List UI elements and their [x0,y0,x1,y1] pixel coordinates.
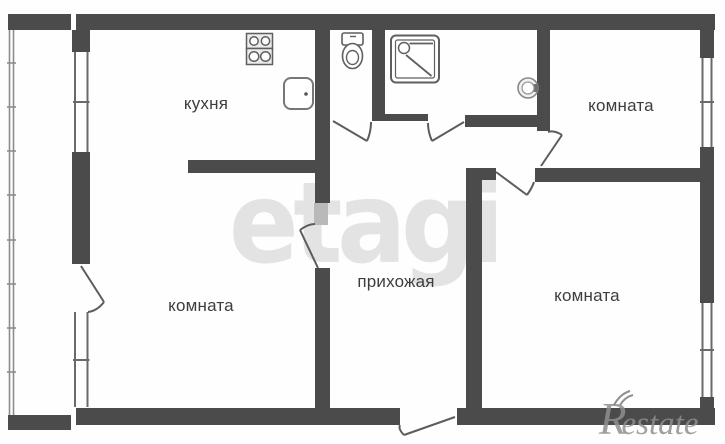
wall [76,408,400,425]
restate-logo-text: estate [622,406,699,443]
toilet-icon [342,33,363,69]
window-room-top-right [700,58,714,147]
wall [188,160,330,173]
walls [8,14,715,430]
room-label-bottom-right: комната [554,286,620,306]
shower-icon [391,36,439,83]
wall [700,147,714,303]
balcony-glazing [7,30,16,415]
wall [535,168,700,182]
wall [372,114,428,121]
wall [72,30,90,52]
room-bottom-right-door-swing [496,172,534,195]
floor-plan: кухня комната комната комната прихожая e… [0,0,725,444]
sink-icon [284,78,313,109]
room-label-kitchen: кухня [184,94,228,114]
watermark-restate: R estate [599,399,698,443]
door-panel [314,203,328,225]
shower-door-swing [428,122,464,141]
window-kitchen-balcony [73,52,90,152]
room-label-bottom-left: комната [168,296,234,316]
wall [700,30,714,58]
wall [465,115,537,127]
room-bottom-left-door-swing [300,224,318,268]
stove-icon [247,34,273,65]
window-room-balcony [73,312,90,407]
wc-door-swing [333,121,371,141]
wall [537,30,550,131]
wall [466,168,482,408]
entrance-door-swing [400,417,456,435]
wall [72,152,90,264]
balcony-door-swing [81,266,104,312]
wall [372,30,385,117]
room-top-right-door-swing [541,131,562,166]
window-room-bottom-right [700,303,714,397]
room-label-hallway: прихожая [357,272,434,292]
wall [8,415,71,430]
room-label-top-right: комната [588,96,654,116]
wall [315,268,330,408]
water-heater-icon [518,78,538,98]
wall [8,14,71,30]
wall [315,30,330,203]
floor-plan-drawing [0,0,725,444]
wall [76,14,715,30]
